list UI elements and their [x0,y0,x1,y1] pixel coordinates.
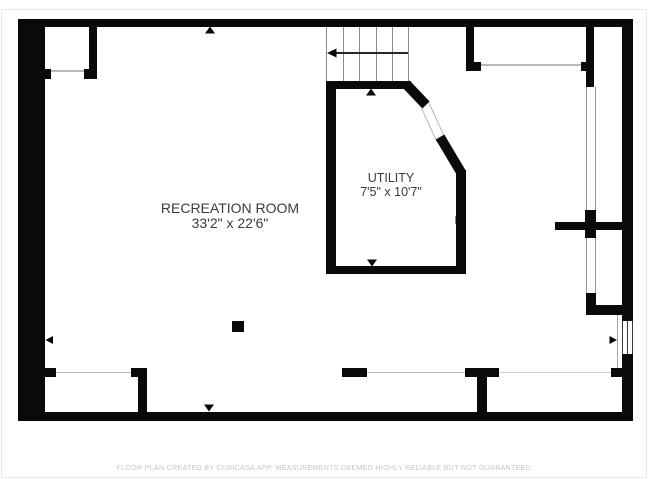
stair-tread [343,27,344,81]
room-label-utility: UTILITY [321,172,461,185]
wall-bottom-stub-3 [611,368,622,377]
wall-right-lower [586,305,622,315]
opening-closet [51,70,84,72]
wall-exterior-bottom [18,412,633,421]
wall-utility-top [326,81,411,89]
partition-line-lower-a [586,238,587,293]
opening-top-right [481,64,581,66]
partition-line-lower-b [595,238,596,293]
wall-utility-bottom [326,266,466,274]
wall-nook-right-foot [581,62,594,71]
wall-bottom-stub-1 [45,368,56,377]
wall-nook-left-foot [466,62,481,71]
stair-direction-line [336,52,408,54]
wall-exterior-top [18,19,633,27]
wall-exterior-left [18,19,45,421]
wall-bottom-T-top [465,368,499,377]
window-frame-line [622,321,623,354]
stair-tread [408,27,409,81]
wall-bottom-stub-2 [342,368,367,377]
support-post [232,321,244,332]
window-frame-line [627,321,628,354]
floor-plan: RECREATION ROOM 33'2" x 22'6" UTILITY 7'… [0,0,650,488]
stair-tread [359,27,360,81]
room-label-recreation: RECREATION ROOM [80,201,380,216]
partition-line-upper-a [586,87,587,212]
wall-nook-left-stub [466,27,474,62]
wall-bottom-L-top [131,368,147,377]
image-border [1,9,647,478]
wall-closet-foot [84,69,97,79]
partition-line-upper-b [595,87,596,212]
opening-bottom-3 [499,372,611,373]
footer-disclaimer: FLOOR PLAN CREATED BY CUBICASA APP. MEAS… [0,465,650,472]
stair-tread [376,27,377,81]
room-dimensions-recreation: 33'2" x 22'6" [80,216,380,231]
wall-bottom-L-leg [138,377,147,412]
stair-edge-line [326,27,327,81]
wall-bottom-T-stem [477,377,487,412]
opening-bottom-2 [367,372,465,373]
stair-tread [392,27,393,81]
wall-right-mid [555,222,622,230]
room-dimensions-utility: 7'5" x 10'7" [321,186,461,199]
wall-exterior-right [622,27,633,421]
opening-bottom-1 [56,372,131,373]
window-frame-line [632,321,633,354]
wall-nook-right-stub [586,27,594,87]
window-cap-bottom [622,354,633,358]
door-reveal-line-right [617,315,618,368]
